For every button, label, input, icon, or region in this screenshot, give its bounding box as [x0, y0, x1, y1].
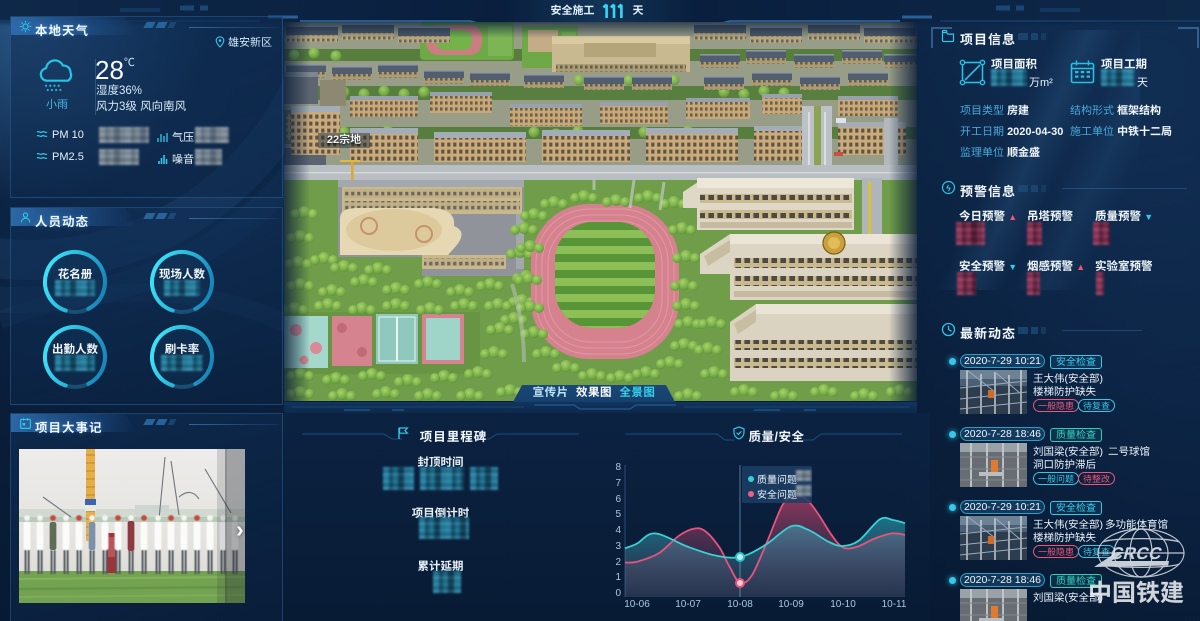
svg-text:CRCC: CRCC — [1108, 543, 1164, 563]
svg-text:中国铁建: 中国铁建 — [1088, 573, 1184, 608]
